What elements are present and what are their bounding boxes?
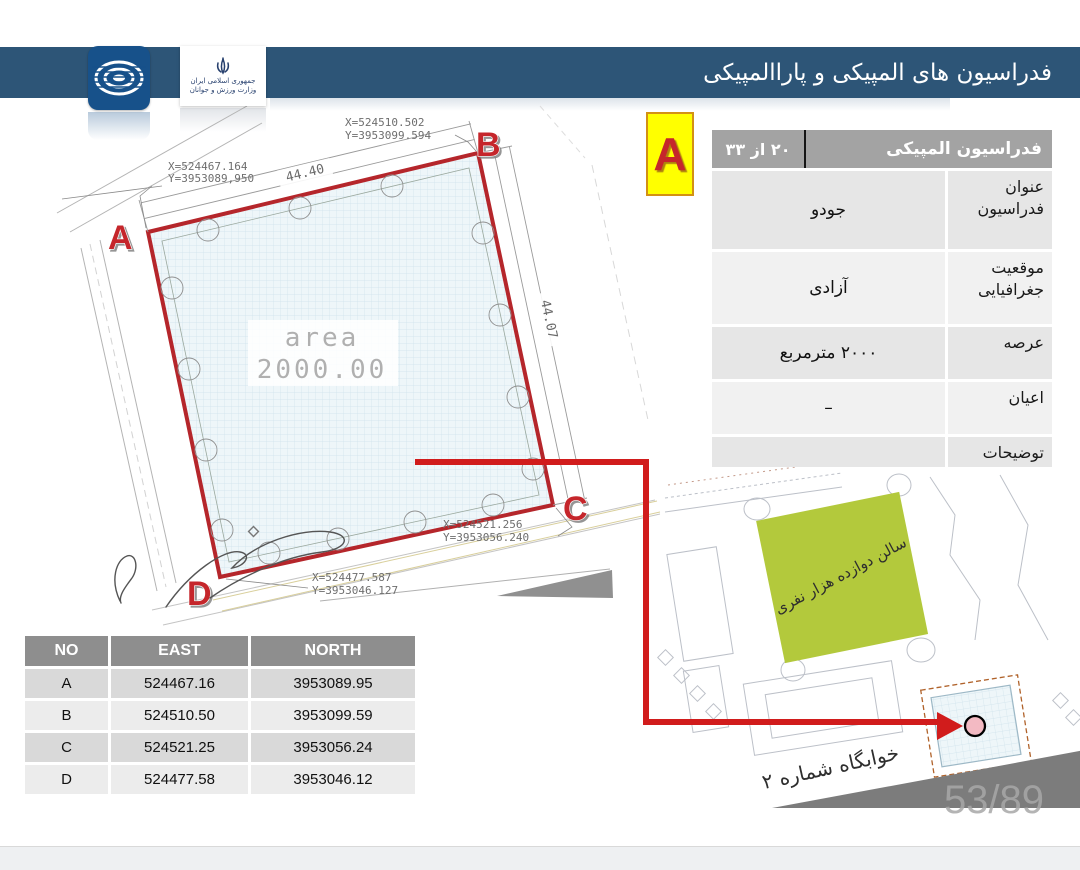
table-row: A 524467.16 3953089.95 — [25, 669, 415, 698]
column-header-no: NO — [25, 636, 108, 666]
header-bar: فدراسیون های المپیکی و پاراالمپیکی — [0, 47, 1080, 98]
corner-a-y: Y=3953089,950 — [168, 172, 254, 185]
cell-east: 524510.50 — [111, 701, 248, 730]
corner-letter-b: B — [476, 126, 501, 164]
corner-d-y: Y=3953046.127 — [312, 584, 398, 597]
ministry-name-line2: وزارت ورزش و جوانان — [190, 86, 257, 95]
federation-info-table: فدراسیون المپیکی ٢٠ از ٣٣ عنوان فدراسیون… — [712, 130, 1052, 467]
section-badge-letter: A — [653, 127, 686, 181]
coordinates-table-header: NO EAST NORTH — [25, 636, 415, 666]
cell-no: D — [25, 765, 108, 794]
area-label: area — [285, 323, 360, 353]
info-row-title: عنوان فدراسیون جودو — [712, 171, 1052, 249]
info-label: توضیحات — [948, 437, 1052, 467]
table-row: C 524521.25 3953056.24 — [25, 733, 415, 762]
info-row-location: موقعیت جغرافیایی آزادی — [712, 252, 1052, 324]
info-label: اعیان — [948, 382, 1052, 434]
page-title: فدراسیون های المپیکی و پاراالمپیکی — [703, 60, 1052, 86]
info-value — [712, 437, 945, 467]
cell-east: 524477.58 — [111, 765, 248, 794]
info-value: – — [712, 382, 945, 434]
cell-north: 3953089.95 — [251, 669, 415, 698]
info-row-land-area: عرصه ٢٠٠٠ مترمربع — [712, 327, 1052, 379]
info-table-title: فدراسیون المپیکی — [806, 139, 1052, 159]
info-label: عنوان فدراسیون — [948, 171, 1052, 249]
info-value: ٢٠٠٠ مترمربع — [712, 327, 945, 379]
page-number: 53/89 — [944, 778, 1044, 822]
info-table-page-indicator: ٢٠ از ٣٣ — [712, 140, 804, 159]
company-logo — [88, 46, 150, 110]
corner-letter-c: C — [563, 490, 588, 528]
cell-no: B — [25, 701, 108, 730]
corner-b-x: X=524510.502 — [345, 116, 424, 129]
corner-c-x: X=524521.256 — [443, 518, 522, 531]
plan-gray-triangle — [497, 570, 613, 598]
cell-no: C — [25, 733, 108, 762]
corner-b-y: Y=3953099.594 — [345, 129, 431, 142]
corner-c-y: Y=3953056.240 — [443, 531, 529, 544]
area-value: 2000.00 — [257, 355, 388, 385]
coordinates-table: NO EAST NORTH A 524467.16 3953089.95 B 5… — [25, 636, 415, 794]
info-table-divider — [804, 130, 806, 168]
dormitory-label: خوابگاه شماره ٢ — [760, 740, 901, 794]
info-value: آزادی — [712, 252, 945, 324]
table-row: D 524477.58 3953046.12 — [25, 765, 415, 794]
corner-letter-a: A — [108, 219, 133, 257]
dim-right-group: 44.07 — [535, 291, 563, 347]
ministry-name-line1: جمهوری اسلامی ایران — [191, 77, 256, 86]
company-logo-icon — [88, 46, 150, 110]
section-badge: A — [646, 112, 694, 196]
dim-right-label: 44.07 — [537, 299, 560, 340]
info-label: موقعیت جغرافیایی — [948, 252, 1052, 324]
info-value: جودو — [712, 171, 945, 249]
cell-north: 3953056.24 — [251, 733, 415, 762]
cell-east: 524467.16 — [111, 669, 248, 698]
ministry-logo: جمهوری اسلامی ایران وزارت ورزش و جوانان — [180, 46, 266, 106]
slide-page: area 2000.00 44.40 44.07 — [0, 0, 1080, 870]
footer-strip — [0, 846, 1080, 870]
cell-north: 3953046.12 — [251, 765, 415, 794]
cell-no: A — [25, 669, 108, 698]
dim-top-group: 44.40 — [277, 158, 333, 187]
column-header-east: EAST — [111, 636, 248, 666]
column-header-north: NORTH — [251, 636, 415, 666]
info-row-notes: توضیحات — [712, 437, 1052, 467]
dim-top-label: 44.40 — [284, 162, 326, 186]
location-marker-icon — [965, 716, 985, 736]
table-row: B 524510.50 3953099.59 — [25, 701, 415, 730]
corner-d-x: X=524477.587 — [312, 571, 391, 584]
info-table-header: فدراسیون المپیکی ٢٠ از ٣٣ — [712, 130, 1052, 168]
info-label: عرصه — [948, 327, 1052, 379]
corner-letter-d: D — [187, 575, 212, 613]
info-row-building: اعیان – — [712, 382, 1052, 434]
cell-east: 524521.25 — [111, 733, 248, 762]
iran-emblem-icon — [213, 57, 233, 77]
cell-north: 3953099.59 — [251, 701, 415, 730]
